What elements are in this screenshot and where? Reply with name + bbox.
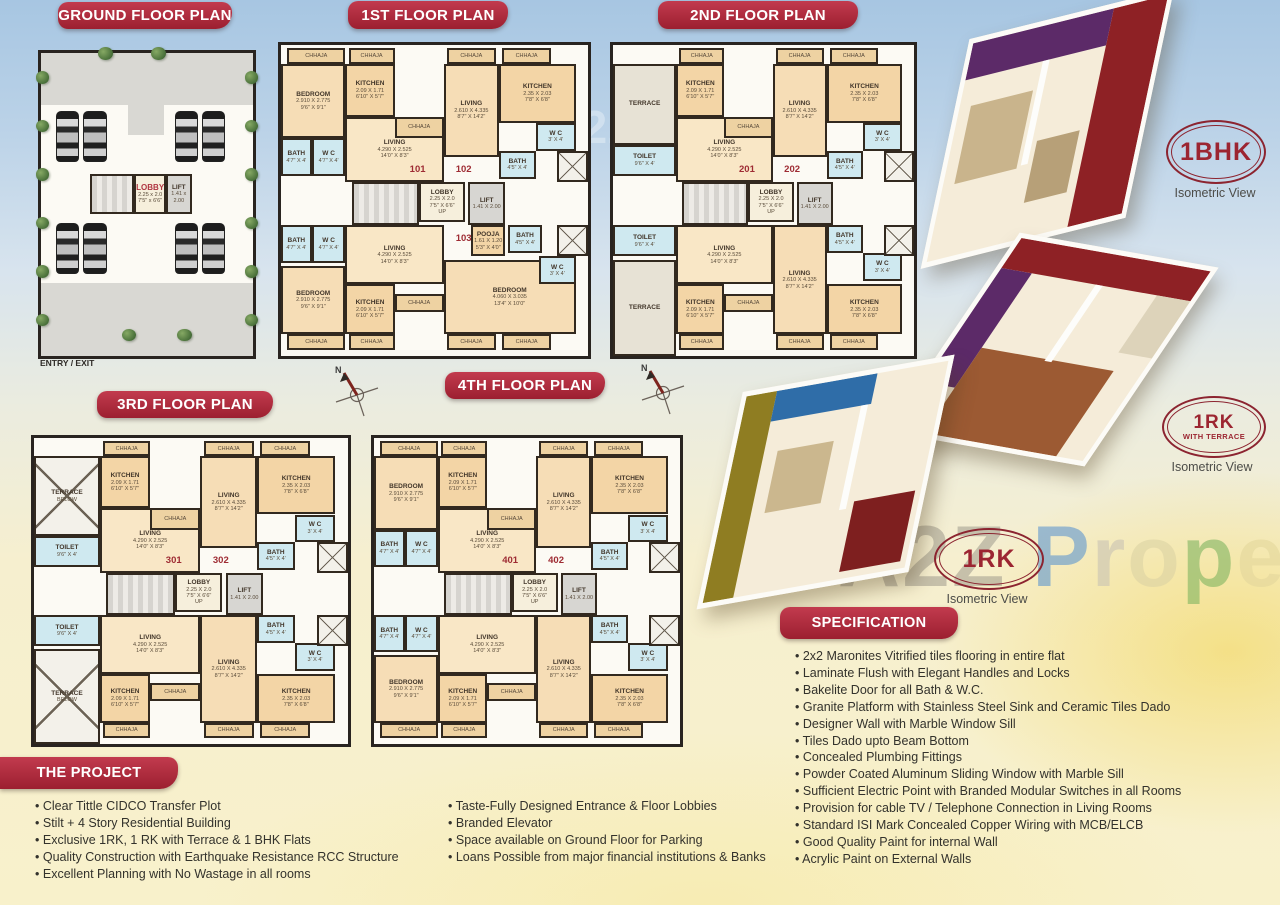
room-living: LIVING2.610 X 4.3358'7" X 14'2" [200, 615, 257, 722]
watermark-letter: o [1127, 509, 1182, 605]
room-label: CHHAJA [116, 727, 138, 733]
room-kitchen: KITCHEN2.09 X 1.716'10" X 5'7" [676, 284, 724, 334]
room-dimension: 3' X 4' [550, 271, 565, 277]
room-dimension: 8'7" X 14'2" [550, 506, 578, 512]
first-floor-plan: BEDROOM2.910 X 2.7759'6" X 9'1"KITCHEN2.… [278, 42, 591, 359]
banner-4th-floor-plan: 4TH FLOOR PLAN [445, 372, 605, 399]
badge-1rk-with-terrace: 1RK WITH TERRACE [1162, 396, 1266, 458]
room-label: KITCHEN [282, 688, 311, 695]
room-dimension: 3' X 4' [875, 137, 890, 143]
room-label: CHHAJA [737, 300, 759, 306]
room-label: CHHAJA [691, 339, 713, 345]
car-icon [56, 111, 79, 163]
room-label: KITCHEN [615, 475, 644, 482]
room-label: LIVING [218, 659, 240, 666]
spec-item: 2x2 Maronites Vitrified tiles flooring i… [795, 648, 1195, 665]
room-label: TERRACE [51, 690, 82, 697]
plan-area-stair [90, 174, 135, 213]
room-dimension: 7'8" X 6'8" [284, 702, 309, 708]
room-dimension: 14'0" X 8'3" [136, 544, 164, 550]
room-chhaja: CHHAJA [679, 334, 724, 350]
unit-number-202: 202 [779, 163, 806, 179]
room-dimension: 7'8" X 6'8" [617, 489, 642, 495]
unit-number-101: 101 [404, 163, 432, 179]
car-icon [202, 111, 225, 163]
tree-icon [245, 217, 259, 230]
room-dimension: 3' X 4' [548, 137, 563, 143]
room-dimension: 4'5" X 4' [515, 240, 535, 246]
compass-rose [330, 368, 384, 422]
compass-north-label: N [641, 363, 648, 373]
project-bullet: Taste-Fully Designed Entrance & Floor Lo… [448, 798, 778, 815]
room-label: TOILET [633, 234, 656, 241]
room-bath: BATH4'5" X 4' [827, 151, 863, 179]
room-living: LIVING2.610 X 4.3358'7" X 14'2" [536, 615, 591, 722]
room-kitchen: KITCHEN2.35 X 2.037'8" X 6'8" [827, 64, 902, 123]
compass-north-label: N [335, 365, 342, 375]
tree-icon [36, 217, 50, 230]
ground-floor-plan: LOBBY2.25 x 2.07'5" x 6'6"LIFT1.41 x2.00 [38, 50, 256, 359]
room-dimension: 9'6" X 9'1" [301, 105, 326, 111]
room-chhaja: CHHAJA [441, 723, 487, 738]
room-dimension: 14'0" X 8'3" [381, 153, 409, 159]
fourth-floor-plan: BEDROOM2.910 X 2.7759'6" X 9'1"KITCHEN2.… [371, 435, 683, 747]
room-label: LOBBY [187, 579, 210, 586]
room-label: BATH [836, 158, 854, 165]
room-label: LOBBY [760, 189, 783, 196]
room-dimension: 9'6" X 4' [57, 631, 77, 637]
room-label: CHHAJA [516, 53, 538, 59]
room-label: W C [309, 650, 322, 657]
car-icon [175, 111, 198, 163]
tree-icon [245, 265, 259, 278]
spec-item: Powder Coated Aluminum Sliding Window wi… [795, 766, 1195, 783]
room-label: BEDROOM [296, 91, 330, 98]
iso-room-divider [1045, 285, 1103, 362]
room-label: LIVING [460, 100, 482, 107]
room-dimension: 7'8" X 6'8" [617, 702, 642, 708]
room-label: BATH [267, 622, 285, 629]
room-label: KITCHEN [111, 472, 140, 479]
room-label: CHHAJA [553, 727, 575, 733]
room-label: LIVING [384, 139, 406, 146]
room-w-c: W C3' X 4' [628, 515, 668, 543]
room-label: LIVING [476, 634, 498, 641]
room-label: W C [309, 521, 322, 528]
plan-area-shaft [649, 615, 680, 646]
room-label: CHHAJA [691, 53, 713, 59]
unit-number-302: 302 [207, 554, 235, 569]
spec-item: Tiles Dado upto Beam Bottom [795, 733, 1195, 750]
room-dimension: 1.41 X 2.00 [565, 595, 593, 601]
room-dimension: BELOW [57, 497, 77, 503]
room-chhaja: CHHAJA [380, 723, 438, 738]
room-label: LIVING [139, 530, 161, 537]
isometric-render-1bhk [925, 6, 1170, 251]
room-terrace: TERRACEBELOW [34, 456, 100, 536]
room-pooja: POOJA1.61 X 1.205'3" X 4'0" [471, 225, 505, 256]
room-dimension: 4'5" X 4' [835, 165, 855, 171]
room-label: LIVING [553, 492, 575, 499]
room-label: TERRACE [629, 304, 660, 311]
room-label: KITCHEN [615, 688, 644, 695]
room-label: KITCHEN [111, 688, 140, 695]
room-label: KITCHEN [448, 688, 477, 695]
room-living: LIVING2.610 X 4.3358'7" X 14'2" [200, 456, 257, 548]
room-kitchen: KITCHEN2.09 X 1.716'10" X 5'7" [345, 284, 394, 334]
plan-area-shaft [884, 151, 914, 182]
room-chhaja: CHHAJA [204, 441, 254, 456]
spec-item: Bakelite Door for all Bath & W.C. [795, 682, 1195, 699]
room-label: BEDROOM [296, 290, 330, 297]
plan-area-stair [682, 182, 748, 226]
room-label: 301 [166, 556, 182, 567]
room-w-c: W C4'7" X 4' [312, 225, 346, 262]
room-label: KITCHEN [686, 80, 715, 87]
plan-area-shaft [557, 151, 588, 182]
room-label: BATH [601, 549, 619, 556]
room-kitchen: KITCHEN2.09 X 1.716'10" X 5'7" [438, 456, 487, 508]
room-label: CHHAJA [408, 300, 430, 306]
room-label: KITCHEN [523, 83, 552, 90]
room-dimension: 4'7" X 4' [411, 549, 431, 555]
caption-isometric-view: Isometric View [928, 592, 1046, 606]
room-w-c: W C3' X 4' [295, 643, 336, 671]
room-kitchen: KITCHEN2.35 X 2.037'8" X 6'8" [257, 456, 336, 514]
car-icon [83, 111, 106, 163]
room-chhaja: CHHAJA [349, 48, 395, 64]
room-label: POOJA [477, 231, 500, 238]
iso-wall [702, 391, 776, 604]
room-chhaja: CHHAJA [204, 723, 254, 738]
room-dimension: 4'7" X 4' [411, 634, 431, 640]
unit-number-201: 201 [733, 163, 760, 179]
caption-isometric-view: Isometric View [1156, 460, 1268, 474]
room-label: W C [415, 541, 428, 548]
plan-area-grey [41, 283, 253, 356]
room-label: CHHAJA [608, 446, 630, 452]
room-label: LIFT [172, 184, 186, 191]
room-label: CHHAJA [789, 339, 811, 345]
spec-item: Sufficient Electric Point with Branded M… [795, 783, 1195, 800]
room-dimension: 4'5" X 4' [600, 630, 620, 636]
room-dimension: 4'7" X 4' [379, 634, 399, 640]
room-label: W C [876, 260, 889, 267]
room-label: LIVING [476, 530, 498, 537]
room-label: BATH [381, 627, 399, 634]
room-dimension: 4'5" X 4' [266, 556, 286, 562]
room-label: CHHAJA [305, 53, 327, 59]
tree-icon [36, 168, 50, 181]
room-dimension: 14'0" X 8'3" [473, 544, 501, 550]
spec-item: Acrylic Paint on External Walls [795, 851, 1195, 868]
room-kitchen: KITCHEN2.35 X 2.037'8" X 6'8" [499, 64, 576, 123]
caption-isometric-view: Isometric View [1160, 186, 1270, 200]
project-bullet: Loans Possible from major financial inst… [448, 849, 778, 866]
room-lift: LIFT1.41 X 2.00 [797, 182, 833, 226]
room-label: CHHAJA [843, 53, 865, 59]
room-label: LIVING [714, 245, 736, 252]
badge-1rk: 1RK [934, 528, 1044, 590]
spec-item: Designer Wall with Marble Window Sill [795, 716, 1195, 733]
room-label: KITCHEN [356, 299, 385, 306]
room-terrace: TERRACE [613, 260, 676, 356]
room-label: CHHAJA [789, 53, 811, 59]
room-dimension: UP [438, 209, 446, 215]
room-w-c: W C3' X 4' [863, 253, 902, 281]
room-label: LIVING [789, 270, 811, 277]
room-dimension: 9'6" X 9'1" [394, 497, 419, 503]
room-label: BATH [288, 237, 306, 244]
room-label: LIVING [789, 100, 811, 107]
brochure-page: www.A2ZProperty.in A2Z Property GROUND F… [0, 0, 1280, 905]
spec-item: Standard ISI Mark Concealed Copper Wirin… [795, 817, 1195, 834]
room-dimension: 13'4" X 10'0" [494, 301, 525, 307]
room-label: KITCHEN [282, 475, 311, 482]
room-label: W C [415, 627, 428, 634]
compass-rose [636, 366, 690, 420]
room-chhaja: CHHAJA [539, 441, 588, 456]
room-dimension: 8'7" X 14'2" [550, 673, 578, 679]
room-bath: BATH4'5" X 4' [591, 615, 628, 643]
watermark-letter: e [1236, 509, 1280, 605]
room-kitchen: KITCHEN2.09 X 1.716'10" X 5'7" [100, 456, 150, 508]
room-chhaja: CHHAJA [103, 723, 150, 738]
room-label: BATH [267, 549, 285, 556]
room-dimension: 6'10" X 5'7" [356, 94, 384, 100]
second-floor-plan: TERRACEKITCHEN2.09 X 1.716'10" X 5'7"LIV… [610, 42, 917, 359]
plan-area-stair [352, 182, 420, 226]
room-label: CHHAJA [398, 446, 420, 452]
room-label: BEDROOM [493, 287, 527, 294]
room-dimension: 4'7" X 4' [286, 158, 306, 164]
room-chhaja: CHHAJA [349, 334, 395, 350]
room-label: CHHAJA [737, 124, 759, 130]
room-label: 302 [213, 556, 229, 567]
room-bath: BATH4'7" X 4' [281, 138, 312, 175]
room-dimension: 7'5" x 6'6" [138, 198, 162, 204]
room-dimension: 6'10" X 5'7" [686, 94, 714, 100]
room-label: 202 [784, 165, 800, 176]
room-dimension: 7'8" X 6'8" [284, 489, 309, 495]
room-dimension: 8'7" X 14'2" [215, 506, 243, 512]
room-chhaja: CHHAJA [502, 334, 551, 350]
project-bullet: Quality Construction with Earthquake Res… [35, 849, 445, 866]
room-dimension: 4'7" X 4' [286, 245, 306, 251]
plan-area-grey [128, 105, 164, 135]
room-living: LIVING4.290 X 2.52514'0" X 8'3" [345, 225, 443, 284]
room-kitchen: KITCHEN2.35 X 2.037'8" X 6'8" [591, 456, 668, 514]
room-dimension: 7'8" X 6'8" [852, 97, 877, 103]
room-label: CHHAJA [116, 446, 138, 452]
room-label: LIFT [808, 197, 822, 204]
room-label: LIVING [384, 245, 406, 252]
room-dimension: 6'10" X 5'7" [686, 313, 714, 319]
room-chhaja: CHHAJA [447, 334, 496, 350]
room-dimension: 8'7" X 14'2" [215, 673, 243, 679]
room-lift: LIFT1.41 X 2.00 [226, 573, 264, 616]
room-dimension: 3' X 4' [875, 268, 890, 274]
iso-room-divider [839, 405, 868, 510]
room-dimension: 14'0" X 8'3" [710, 259, 738, 265]
car-icon [175, 223, 198, 275]
spec-item: Concealed Plumbing Fittings [795, 749, 1195, 766]
room-bath: BATH4'5" X 4' [499, 151, 536, 179]
room-bedroom: BEDROOM2.910 X 2.7759'6" X 9'1" [281, 64, 345, 139]
tree-icon [245, 120, 259, 133]
room-toilet: TOILET9'6" X 4' [613, 225, 676, 256]
room-label: KITCHEN [850, 299, 879, 306]
room-label: KITCHEN [448, 472, 477, 479]
room-chhaja: CHHAJA [487, 508, 536, 529]
room-label: CHHAJA [460, 339, 482, 345]
plan-area-shaft [317, 542, 348, 573]
room-lobby: LOBBY2.25 X 2.07'5" X 6'6"UP [175, 573, 222, 613]
room-label: CHHAJA [608, 727, 630, 733]
tree-icon [245, 314, 259, 327]
room-w-c: W C3' X 4' [628, 643, 668, 671]
tree-icon [36, 120, 50, 133]
room-dimension: 6'10" X 5'7" [449, 702, 477, 708]
room-dimension: 6'10" X 5'7" [111, 486, 139, 492]
room-dimension: 6'10" X 5'7" [449, 486, 477, 492]
room-dimension: 6'10" X 5'7" [356, 313, 384, 319]
room-label: KITCHEN [850, 83, 879, 90]
room-toilet: TOILET9'6" X 4' [613, 145, 676, 176]
room-label: W C [549, 130, 562, 137]
unit-number-102: 102 [450, 163, 478, 179]
room-terrace: TERRACEBELOW [34, 649, 100, 744]
room-label: LOBBY [136, 183, 164, 192]
badge-1bhk: 1BHK [1166, 120, 1266, 184]
plan-area-shaft [884, 225, 914, 256]
room-dimension: 14'0" X 8'3" [473, 648, 501, 654]
iso-floor [696, 354, 954, 609]
room-lift: LIFT1.41 X 2.00 [561, 573, 598, 616]
room-chhaja: CHHAJA [441, 441, 487, 456]
project-bullet: Exclusive 1RK, 1 RK with Terrace & 1 BHK… [35, 832, 445, 849]
iso-furniture [1118, 296, 1190, 359]
room-label: BEDROOM [389, 679, 423, 686]
room-living: LIVING4.290 X 2.52514'0" X 8'3" [438, 615, 536, 673]
unit-number-401: 401 [496, 554, 524, 569]
tree-icon [151, 47, 166, 60]
room-dimension: UP [767, 209, 775, 215]
room-dimension: 4'5" X 4' [600, 556, 620, 562]
room-kitchen: KITCHEN2.09 X 1.716'10" X 5'7" [438, 674, 487, 723]
room-dimension: 3' X 4' [640, 657, 655, 663]
room-label: LOBBY [523, 579, 546, 586]
room-chhaja: CHHAJA [395, 294, 444, 313]
room-chhaja: CHHAJA [679, 48, 724, 64]
room-terrace: TERRACE [613, 64, 676, 145]
room-bath: BATH4'5" X 4' [827, 225, 863, 253]
room-label: LIFT [238, 587, 252, 594]
room-label: W C [322, 150, 335, 157]
room-kitchen: KITCHEN2.35 X 2.037'8" X 6'8" [827, 284, 902, 334]
room-dimension: 2.00 [173, 198, 184, 204]
isometric-render-1rk [700, 362, 950, 602]
room-chhaja: CHHAJA [260, 441, 310, 456]
room-label: TERRACE [629, 100, 660, 107]
room-label: CHHAJA [361, 53, 383, 59]
room-chhaja: CHHAJA [724, 117, 772, 139]
watermark-letter: r [1092, 509, 1127, 605]
room-lobby: LOBBY2.25 X 2.07'5" X 6'6"UP [419, 182, 465, 222]
room-label: LIVING [714, 139, 736, 146]
project-bullet: Stilt + 4 Story Residential Building [35, 815, 445, 832]
room-bedroom: BEDROOM2.910 X 2.7759'6" X 9'1" [374, 456, 438, 529]
room-chhaja: CHHAJA [830, 334, 878, 350]
room-label: CHHAJA [274, 446, 296, 452]
room-dimension: UP [531, 599, 539, 605]
car-icon [56, 223, 79, 275]
room-w-c: W C3' X 4' [295, 515, 336, 543]
room-dimension: 9'6" X 4' [635, 161, 655, 167]
iso-kitchen [839, 490, 915, 571]
plan-area-stair [444, 573, 511, 616]
room-dimension: BELOW [57, 697, 77, 703]
room-dimension: 5'3" X 4'0" [476, 245, 501, 251]
spec-item: Good Quality Paint for internal Wall [795, 834, 1195, 851]
room-label: CHHAJA [218, 446, 240, 452]
room-kitchen: KITCHEN2.09 X 1.716'10" X 5'7" [345, 64, 394, 117]
room-label: 401 [502, 556, 518, 567]
room-label: CHHAJA [460, 53, 482, 59]
plan-area-grey [41, 53, 253, 105]
specification-list: 2x2 Maronites Vitrified tiles flooring i… [795, 648, 1195, 868]
room-label: KITCHEN [356, 80, 385, 87]
iso-furniture [1024, 131, 1080, 203]
room-label: 101 [410, 165, 426, 176]
plan-area-shaft [317, 615, 348, 646]
badge-sublabel: WITH TERRACE [1183, 432, 1245, 441]
room-label: BATH [836, 232, 854, 239]
plan-area-stair [106, 573, 175, 616]
room-label: CHHAJA [274, 727, 296, 733]
room-label: W C [642, 521, 655, 528]
project-list-2: Taste-Fully Designed Entrance & Floor Lo… [448, 798, 778, 866]
spec-item: Provision for cable TV / Telephone Conne… [795, 800, 1195, 817]
tree-icon [177, 329, 192, 342]
room-w-c: W C3' X 4' [539, 256, 576, 284]
room-bath: BATH4'7" X 4' [281, 225, 312, 262]
room-label: BATH [509, 158, 527, 165]
project-list-1: Clear Tittle CIDCO Transfer PlotStilt + … [35, 798, 445, 883]
banner-2nd-floor-plan: 2ND FLOOR PLAN [658, 1, 858, 29]
room-label: CHHAJA [453, 446, 475, 452]
room-bath: BATH4'5" X 4' [508, 225, 542, 253]
room-label: TOILET [55, 624, 78, 631]
banner-the-project: THE PROJECT [0, 757, 178, 789]
room-w-c: W C3' X 4' [536, 123, 576, 151]
room-dimension: 4'5" X 4' [266, 630, 286, 636]
room-label: CHHAJA [516, 339, 538, 345]
badge-label: 1RK [1193, 413, 1234, 432]
room-dimension: 4'5" X 4' [507, 165, 527, 171]
room-dimension: 8'7" X 14'2" [786, 284, 814, 290]
room-label: 102 [456, 165, 472, 176]
room-dimension: 14'0" X 8'3" [136, 648, 164, 654]
banner-3rd-floor-plan: 3RD FLOOR PLAN [97, 391, 273, 418]
room-bath: BATH4'5" X 4' [257, 615, 295, 643]
room-chhaja: CHHAJA [830, 48, 878, 64]
room-w-c: W C4'7" X 4' [405, 530, 439, 567]
car-icon [202, 223, 225, 275]
room-kitchen: KITCHEN2.09 X 1.716'10" X 5'7" [100, 674, 150, 723]
room-label: CHHAJA [164, 516, 186, 522]
room-chhaja: CHHAJA [724, 294, 772, 313]
